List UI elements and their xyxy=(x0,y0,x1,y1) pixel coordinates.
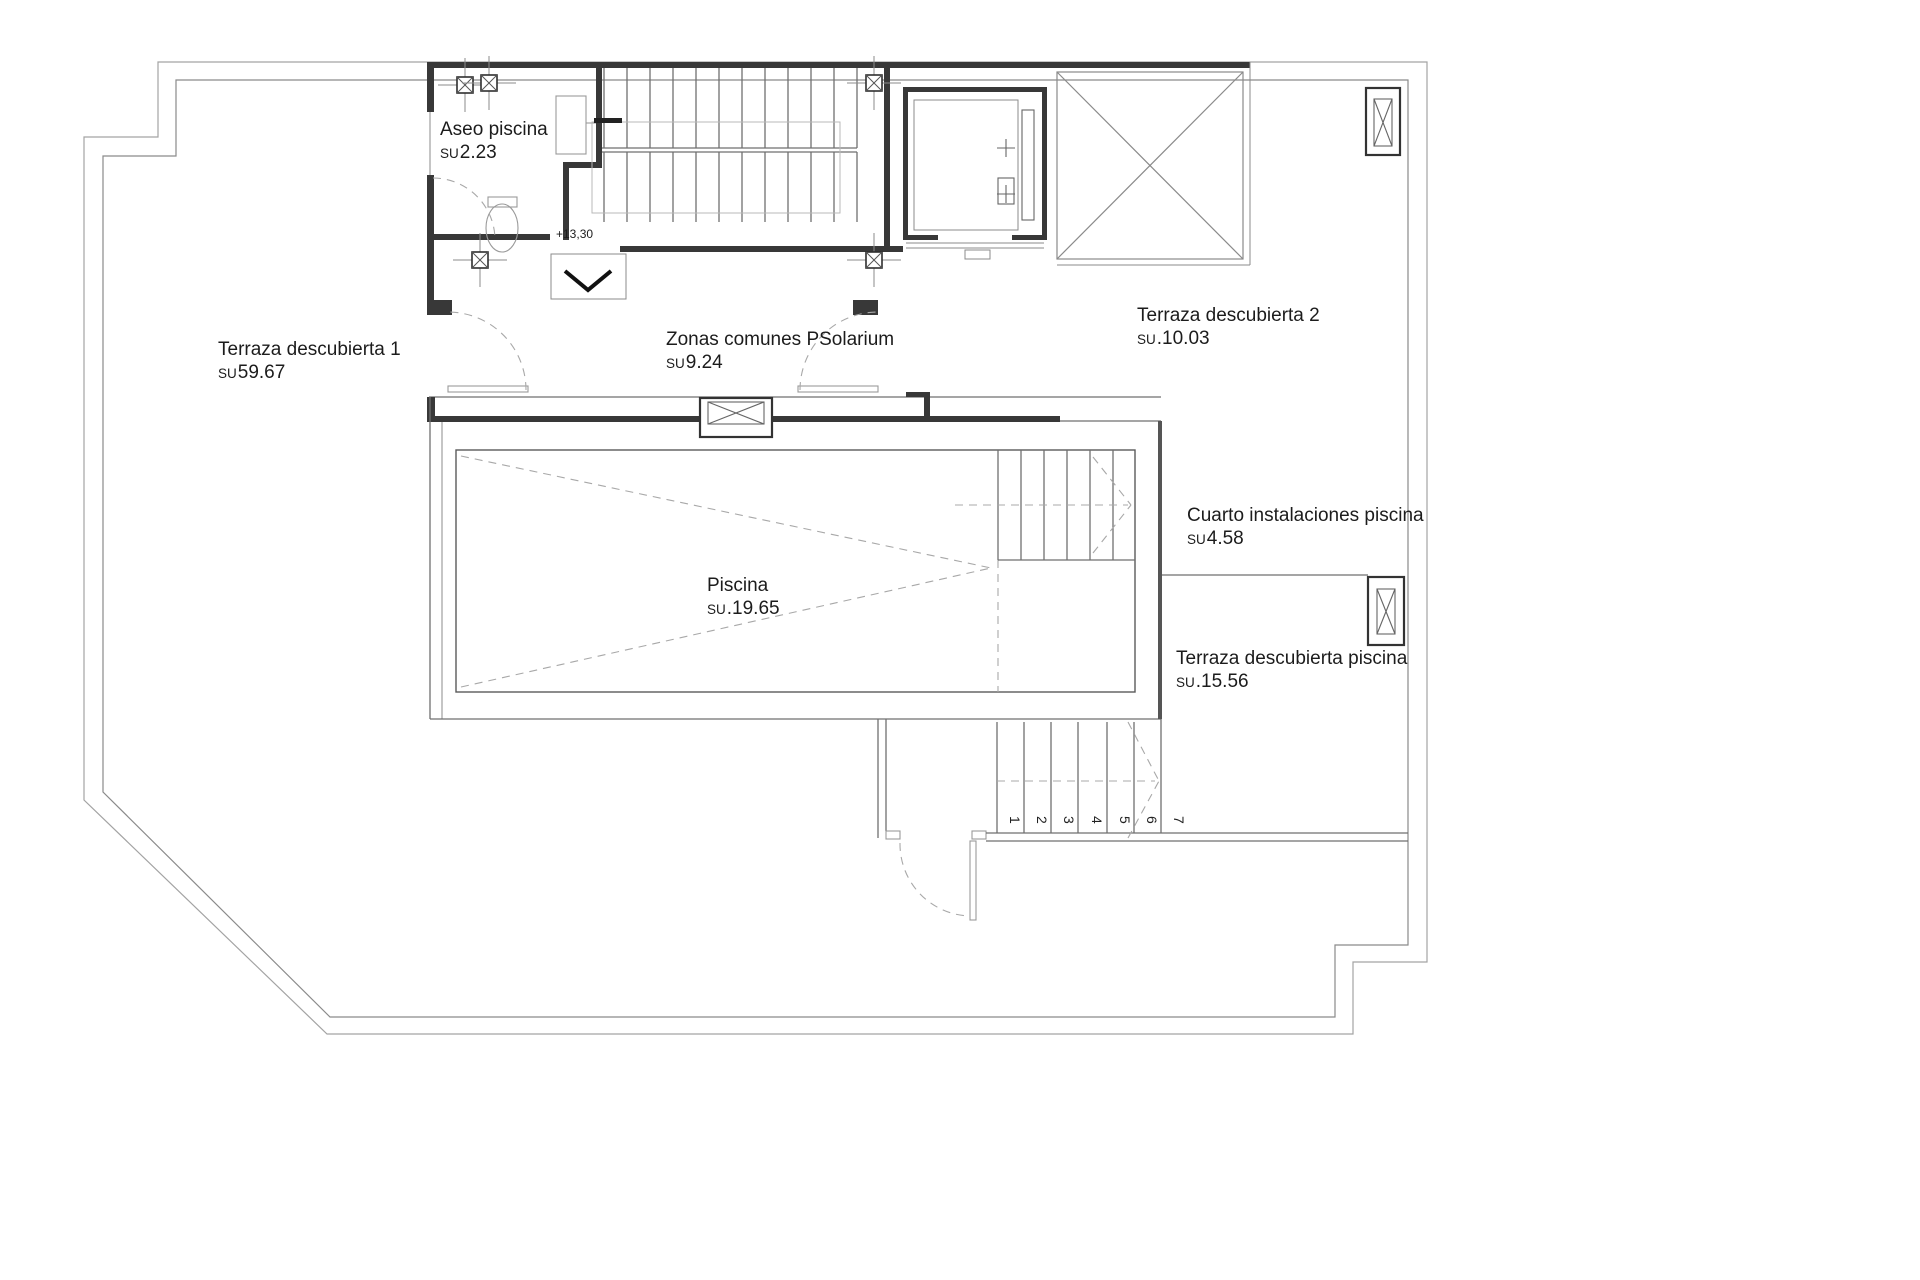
room-name: Aseo piscina xyxy=(440,119,548,140)
label-cuarto-instalaciones: Cuarto instalaciones piscina SU4.58 xyxy=(1187,505,1424,549)
pool-steps xyxy=(955,450,1135,560)
room-name: Terraza descubierta piscina xyxy=(1176,648,1408,669)
right-wing-walls xyxy=(1158,421,1162,833)
stair-number: 1 xyxy=(1007,816,1023,824)
level-marker: +13,30 xyxy=(556,227,593,241)
door-arc-bottom xyxy=(900,843,969,916)
pool-zone xyxy=(430,397,1161,719)
room-name: Terraza descubierta 2 xyxy=(1137,305,1320,326)
label-aseo-piscina: Aseo piscina SU2.23 xyxy=(440,119,548,163)
door-leaf xyxy=(798,386,878,392)
svg-text:SU.15.56: SU.15.56 xyxy=(1176,671,1249,692)
stair-guard xyxy=(592,122,840,213)
drain-box xyxy=(700,398,772,437)
stair-numbers: 1 2 3 4 5 6 7 xyxy=(1007,816,1187,824)
svg-text:SU.10.03: SU.10.03 xyxy=(1137,328,1210,349)
vent-shaft-top xyxy=(1366,88,1400,155)
void-shaft xyxy=(1057,62,1250,265)
floor-plan-canvas: 1 2 3 4 5 6 7 Aseo piscina SU2.23 Terraz… xyxy=(0,0,1920,1280)
lower-stair: 1 2 3 4 5 6 7 xyxy=(878,719,1408,920)
door-leaf xyxy=(448,386,528,392)
room-name: Zonas comunes PSolarium xyxy=(666,329,894,350)
door-arc-right xyxy=(800,312,878,390)
stair-number: 6 xyxy=(1144,816,1160,824)
label-zonas-comunes: Zonas comunes PSolarium SU9.24 xyxy=(666,329,894,373)
entry-mat xyxy=(551,254,626,299)
label-piscina: Piscina SU.19.65 xyxy=(707,575,780,619)
pool-edge xyxy=(456,450,1135,692)
toilet-tank xyxy=(488,197,517,207)
column xyxy=(847,233,901,287)
svg-text:SU9.24: SU9.24 xyxy=(666,352,723,373)
label-terraza-descubierta-1: Terraza descubierta 1 SU59.67 xyxy=(218,339,401,383)
column xyxy=(453,233,507,287)
label-terraza-descubierta-2: Terraza descubierta 2 SU.10.03 xyxy=(1137,305,1320,349)
entry-arrow-icon xyxy=(565,271,611,290)
elevator xyxy=(903,87,1047,259)
svg-text:SU2.23: SU2.23 xyxy=(440,142,497,163)
structural-columns xyxy=(438,56,901,287)
door-arc-left xyxy=(448,312,526,390)
svg-text:SU.19.65: SU.19.65 xyxy=(707,598,780,619)
label-terraza-descubierta-piscina: Terraza descubierta piscina SU.15.56 xyxy=(1176,648,1408,692)
door-leaf xyxy=(970,841,976,920)
stair-number: 4 xyxy=(1089,816,1105,824)
vent-shaft-middle xyxy=(1161,575,1404,645)
stair-number: 7 xyxy=(1171,816,1187,824)
room-name: Terraza descubierta 1 xyxy=(218,339,401,360)
sink xyxy=(556,96,586,154)
elevator-rail xyxy=(1022,110,1034,220)
stair-number: 3 xyxy=(1061,816,1077,824)
svg-text:SU59.67: SU59.67 xyxy=(218,362,285,383)
handrail-tick xyxy=(594,118,622,123)
room-name: Cuarto instalaciones piscina xyxy=(1187,505,1424,526)
stair-number: 5 xyxy=(1117,816,1133,824)
stair-number: 2 xyxy=(1034,816,1050,824)
svg-text:SU4.58: SU4.58 xyxy=(1187,528,1244,549)
elevator-car xyxy=(914,100,1018,230)
room-name: Piscina xyxy=(707,575,769,596)
toilet-bowl xyxy=(486,204,518,252)
